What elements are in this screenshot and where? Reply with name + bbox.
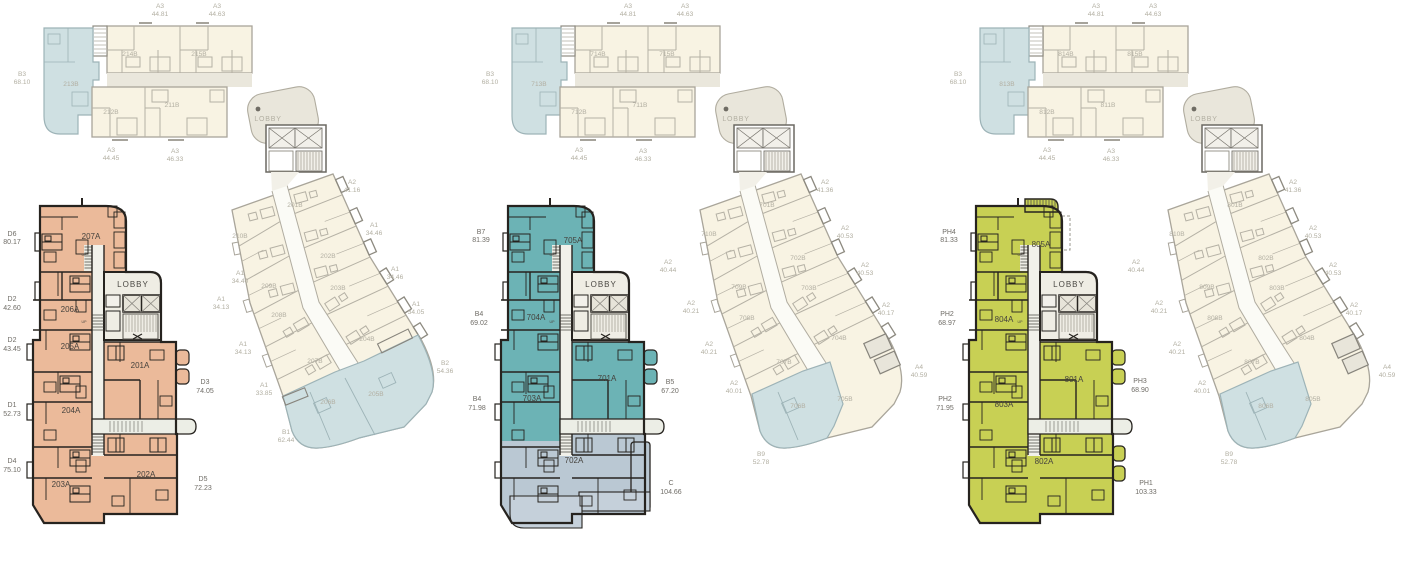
svg-text:A1: A1	[239, 341, 247, 348]
svg-text:80.17: 80.17	[3, 239, 21, 246]
svg-text:A2: A2	[1155, 300, 1163, 307]
svg-text:44.81: 44.81	[1088, 11, 1105, 18]
svg-text:71.95: 71.95	[936, 405, 954, 412]
svg-text:B4: B4	[473, 396, 482, 403]
svg-text:UP: UP	[550, 253, 556, 257]
svg-text:207A: 207A	[82, 232, 101, 241]
svg-text:810B: 810B	[1169, 231, 1185, 238]
svg-text:214B: 214B	[122, 51, 138, 58]
svg-text:PH4: PH4	[942, 229, 956, 236]
svg-text:A1: A1	[217, 296, 225, 303]
svg-text:207B: 207B	[307, 358, 323, 365]
svg-text:68.10: 68.10	[950, 79, 967, 86]
svg-text:703B: 703B	[801, 285, 817, 292]
svg-text:PH3: PH3	[1133, 378, 1147, 385]
svg-text:215B: 215B	[191, 51, 207, 58]
svg-text:43.45: 43.45	[3, 346, 21, 353]
svg-text:68.97: 68.97	[938, 320, 956, 327]
svg-text:34.13: 34.13	[235, 349, 252, 356]
svg-text:A2: A2	[882, 302, 890, 309]
svg-text:B5: B5	[666, 379, 675, 386]
svg-text:UP: UP	[550, 320, 556, 324]
svg-text:814B: 814B	[1058, 51, 1074, 58]
svg-text:81.39: 81.39	[472, 237, 490, 244]
svg-text:44.63: 44.63	[1145, 11, 1162, 18]
svg-text:805B: 805B	[1305, 396, 1321, 403]
svg-text:71.98: 71.98	[468, 405, 486, 412]
svg-text:A2: A2	[1198, 380, 1206, 387]
svg-text:67.20: 67.20	[661, 388, 679, 395]
svg-text:A3: A3	[624, 3, 632, 10]
svg-text:PH1: PH1	[1139, 480, 1153, 487]
svg-text:LOBBY: LOBBY	[722, 116, 749, 123]
svg-text:40.01: 40.01	[1194, 388, 1211, 395]
svg-text:704B: 704B	[831, 335, 847, 342]
svg-text:709B: 709B	[731, 284, 747, 291]
svg-text:715B: 715B	[659, 51, 675, 58]
svg-text:44.45: 44.45	[571, 155, 588, 162]
svg-text:40.21: 40.21	[1151, 308, 1168, 315]
svg-text:42.60: 42.60	[3, 305, 21, 312]
svg-text:A3: A3	[107, 147, 115, 154]
svg-text:44.45: 44.45	[103, 155, 120, 162]
svg-text:A2: A2	[841, 225, 849, 232]
svg-text:PH2: PH2	[938, 396, 952, 403]
svg-text:D1: D1	[8, 402, 17, 409]
svg-text:706B: 706B	[790, 403, 806, 410]
svg-text:A3: A3	[156, 3, 164, 10]
svg-text:A2: A2	[348, 179, 356, 186]
svg-text:712B: 712B	[571, 109, 587, 116]
svg-text:41.16: 41.16	[344, 187, 361, 194]
svg-text:702B: 702B	[790, 255, 806, 262]
svg-text:206A: 206A	[61, 305, 80, 314]
svg-text:46.33: 46.33	[1103, 156, 1120, 163]
svg-text:D2: D2	[8, 296, 17, 303]
svg-text:41.36: 41.36	[1285, 187, 1302, 194]
svg-text:40.17: 40.17	[878, 310, 895, 317]
svg-text:803A: 803A	[995, 400, 1014, 409]
svg-text:A1: A1	[260, 382, 268, 389]
svg-text:209B: 209B	[261, 283, 277, 290]
svg-text:44.45: 44.45	[1039, 155, 1056, 162]
svg-text:809B: 809B	[1199, 284, 1215, 291]
svg-text:A4: A4	[1383, 364, 1391, 371]
svg-text:68.10: 68.10	[14, 79, 31, 86]
svg-text:52.78: 52.78	[753, 459, 770, 466]
svg-text:41.36: 41.36	[817, 187, 834, 194]
svg-text:708B: 708B	[739, 315, 755, 322]
svg-text:UP: UP	[1018, 253, 1024, 257]
svg-text:806B: 806B	[1258, 403, 1274, 410]
svg-text:203A: 203A	[52, 480, 71, 489]
svg-text:LOBBY: LOBBY	[1190, 116, 1217, 123]
svg-text:A3: A3	[575, 147, 583, 154]
svg-text:40.44: 40.44	[660, 267, 677, 274]
svg-text:201A: 201A	[131, 361, 150, 370]
svg-text:LOBBY: LOBBY	[1053, 280, 1085, 289]
svg-text:804A: 804A	[995, 315, 1014, 324]
svg-text:A3: A3	[639, 148, 647, 155]
svg-text:710B: 710B	[701, 231, 717, 238]
svg-text:34.40: 34.40	[232, 278, 249, 285]
svg-text:A2: A2	[705, 341, 713, 348]
svg-text:UP: UP	[1018, 320, 1024, 324]
svg-text:81.33: 81.33	[940, 237, 958, 244]
svg-text:202A: 202A	[137, 470, 156, 479]
svg-text:34.13: 34.13	[213, 304, 230, 311]
svg-text:62.44: 62.44	[278, 437, 295, 444]
svg-text:A4: A4	[915, 364, 923, 371]
svg-text:B9: B9	[1225, 451, 1233, 458]
svg-text:804B: 804B	[1299, 335, 1315, 342]
svg-text:52.73: 52.73	[3, 411, 21, 418]
svg-text:B3: B3	[954, 71, 962, 78]
svg-text:802A: 802A	[1035, 457, 1054, 466]
svg-text:801B: 801B	[1227, 202, 1243, 209]
svg-text:815B: 815B	[1127, 51, 1143, 58]
svg-text:A2: A2	[730, 380, 738, 387]
svg-text:205A: 205A	[61, 342, 80, 351]
svg-text:74.05: 74.05	[196, 388, 214, 395]
svg-text:40.53: 40.53	[1325, 270, 1342, 277]
svg-text:B9: B9	[757, 451, 765, 458]
svg-text:D4: D4	[8, 458, 17, 465]
svg-text:A2: A2	[861, 262, 869, 269]
svg-text:B3: B3	[18, 71, 26, 78]
svg-text:A1: A1	[236, 270, 244, 277]
svg-text:A2: A2	[664, 259, 672, 266]
svg-text:A3: A3	[1107, 148, 1115, 155]
svg-text:811B: 811B	[1101, 102, 1117, 109]
svg-text:208B: 208B	[271, 312, 287, 319]
svg-text:701B: 701B	[759, 202, 775, 209]
svg-text:44.81: 44.81	[620, 11, 637, 18]
svg-text:A2: A2	[1329, 262, 1337, 269]
svg-text:A3: A3	[213, 3, 221, 10]
svg-text:A2: A2	[1350, 302, 1358, 309]
svg-text:A1: A1	[391, 266, 399, 273]
svg-text:33.85: 33.85	[256, 390, 273, 397]
svg-text:B7: B7	[477, 229, 486, 236]
svg-text:104.66: 104.66	[660, 489, 682, 496]
svg-text:813B: 813B	[999, 81, 1015, 88]
svg-text:A3: A3	[1092, 3, 1100, 10]
svg-text:805A: 805A	[1032, 240, 1051, 249]
svg-text:A2: A2	[687, 300, 695, 307]
svg-text:D5: D5	[199, 476, 208, 483]
svg-text:40.53: 40.53	[1305, 233, 1322, 240]
svg-text:803B: 803B	[1269, 285, 1285, 292]
svg-text:B4: B4	[475, 311, 484, 318]
svg-text:801A: 801A	[1065, 375, 1084, 384]
svg-text:34.46: 34.46	[366, 230, 383, 237]
svg-text:703A: 703A	[523, 394, 542, 403]
svg-text:PH2: PH2	[940, 311, 954, 318]
svg-text:714B: 714B	[590, 51, 606, 58]
svg-text:203B: 203B	[330, 285, 346, 292]
svg-text:B2: B2	[441, 360, 449, 367]
svg-text:D3: D3	[201, 379, 210, 386]
svg-text:808B: 808B	[1207, 315, 1223, 322]
svg-text:A3: A3	[681, 3, 689, 10]
svg-text:705A: 705A	[564, 236, 583, 245]
svg-text:46.33: 46.33	[167, 156, 184, 163]
svg-text:701A: 701A	[598, 374, 617, 383]
svg-text:40.53: 40.53	[837, 233, 854, 240]
svg-text:44.63: 44.63	[209, 11, 226, 18]
svg-text:213B: 213B	[63, 81, 79, 88]
svg-text:46.33: 46.33	[635, 156, 652, 163]
svg-text:75.10: 75.10	[3, 467, 21, 474]
svg-text:44.81: 44.81	[152, 11, 169, 18]
svg-text:34.46: 34.46	[387, 274, 404, 281]
svg-text:LOBBY: LOBBY	[585, 280, 617, 289]
svg-text:40.59: 40.59	[1379, 372, 1396, 379]
svg-text:A3: A3	[1149, 3, 1157, 10]
svg-text:713B: 713B	[531, 81, 547, 88]
svg-text:A3: A3	[1043, 147, 1051, 154]
svg-text:A3: A3	[171, 148, 179, 155]
svg-text:704A: 704A	[527, 313, 546, 322]
svg-text:807B: 807B	[1244, 359, 1260, 366]
svg-text:40.59: 40.59	[911, 372, 928, 379]
svg-text:103.33: 103.33	[1135, 489, 1157, 496]
svg-text:34.05: 34.05	[408, 309, 425, 316]
svg-text:202B: 202B	[320, 253, 336, 260]
svg-text:210B: 210B	[232, 233, 248, 240]
svg-text:40.21: 40.21	[1169, 349, 1186, 356]
svg-text:LOBBY: LOBBY	[254, 116, 281, 123]
svg-text:705B: 705B	[837, 396, 853, 403]
svg-text:68.90: 68.90	[1131, 387, 1149, 394]
svg-text:72.23: 72.23	[194, 485, 212, 492]
svg-text:40.17: 40.17	[1346, 310, 1363, 317]
svg-text:711B: 711B	[633, 102, 649, 109]
svg-text:211B: 211B	[165, 102, 181, 109]
svg-text:A2: A2	[821, 179, 829, 186]
svg-text:C: C	[668, 480, 673, 487]
svg-text:206B: 206B	[320, 399, 336, 406]
svg-text:A1: A1	[412, 301, 420, 308]
svg-text:812B: 812B	[1039, 109, 1055, 116]
svg-text:UP: UP	[82, 253, 88, 257]
svg-text:LOBBY: LOBBY	[117, 280, 149, 289]
svg-text:B1: B1	[282, 429, 290, 436]
svg-text:UP: UP	[82, 320, 88, 324]
svg-text:A1: A1	[370, 222, 378, 229]
svg-text:52.78: 52.78	[1221, 459, 1238, 466]
svg-text:44.63: 44.63	[677, 11, 694, 18]
svg-text:205B: 205B	[368, 391, 384, 398]
svg-text:40.21: 40.21	[701, 349, 718, 356]
svg-text:A2: A2	[1132, 259, 1140, 266]
svg-text:B3: B3	[486, 71, 494, 78]
svg-text:40.21: 40.21	[683, 308, 700, 315]
svg-text:68.10: 68.10	[482, 79, 499, 86]
svg-text:D2: D2	[8, 337, 17, 344]
svg-text:40.44: 40.44	[1128, 267, 1145, 274]
svg-text:69.02: 69.02	[470, 320, 488, 327]
svg-text:A2: A2	[1289, 179, 1297, 186]
svg-text:54.36: 54.36	[437, 368, 454, 375]
svg-text:212B: 212B	[103, 109, 119, 116]
svg-text:802B: 802B	[1258, 255, 1274, 262]
svg-text:40.01: 40.01	[726, 388, 743, 395]
svg-text:707B: 707B	[776, 359, 792, 366]
svg-text:D6: D6	[8, 231, 17, 238]
svg-text:40.53: 40.53	[857, 270, 874, 277]
svg-text:702A: 702A	[565, 456, 584, 465]
svg-text:201B: 201B	[287, 202, 303, 209]
svg-text:A2: A2	[1173, 341, 1181, 348]
svg-text:204A: 204A	[62, 406, 81, 415]
svg-text:A2: A2	[1309, 225, 1317, 232]
svg-text:204B: 204B	[359, 336, 375, 343]
